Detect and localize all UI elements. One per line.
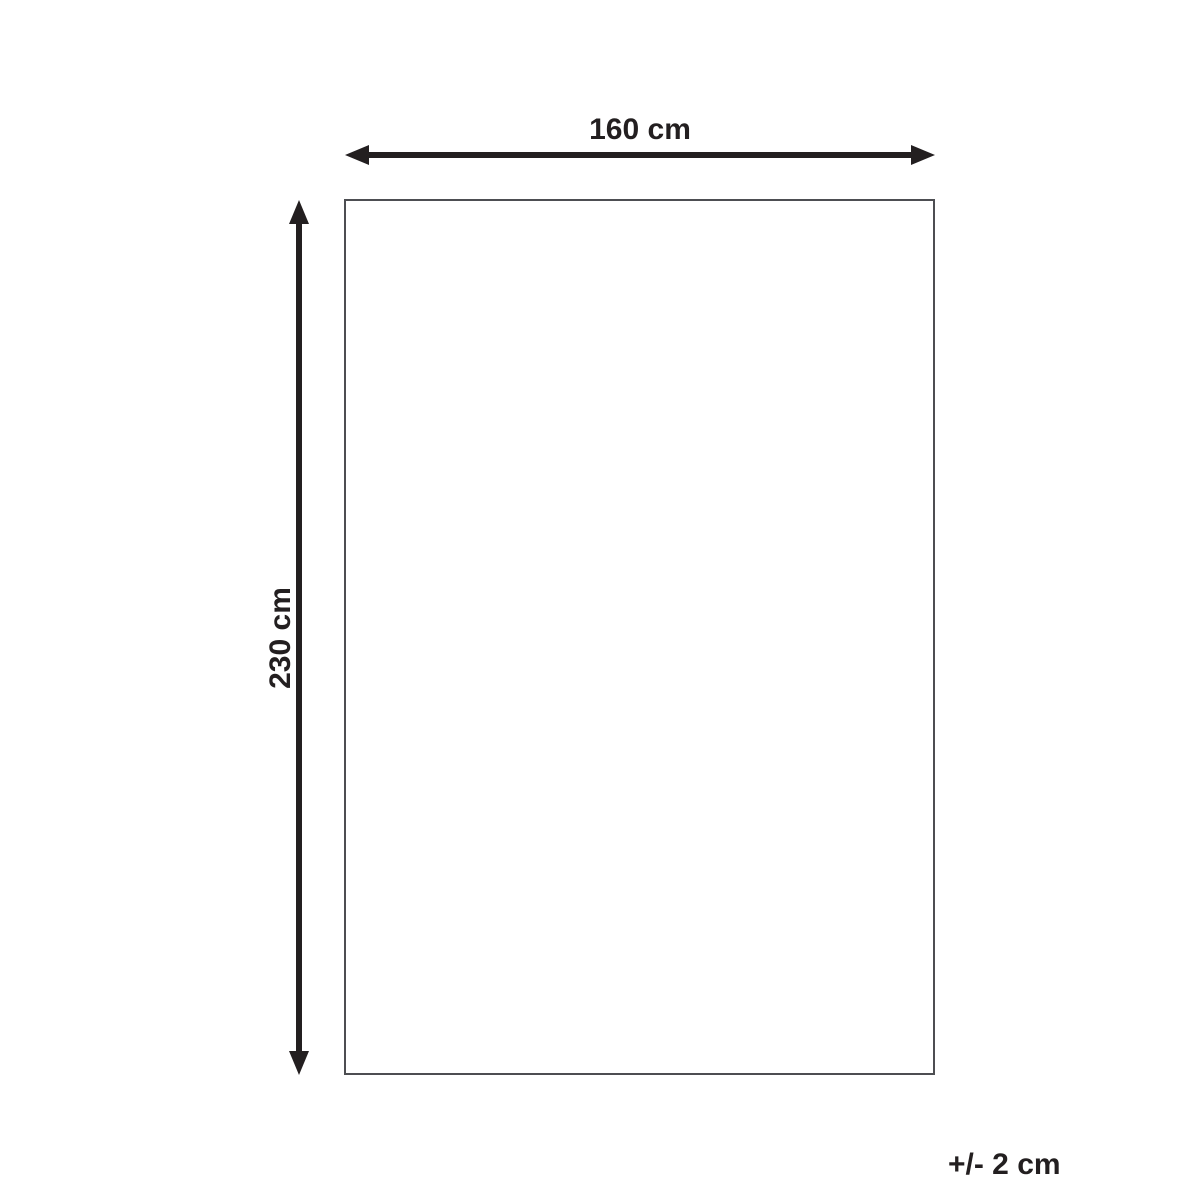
width-dimension-arrow [345,145,935,165]
dimension-diagram: 160 cm 230 cm +/- 2 cm [0,0,1200,1200]
arrowhead-right-icon [911,145,935,165]
height-dimension-label: 230 cm [264,587,298,689]
width-arrow-shaft [361,152,919,158]
tolerance-label: +/- 2 cm [948,1148,1061,1182]
product-outline-rect [344,199,935,1075]
arrowhead-down-icon [289,1051,309,1075]
width-dimension-label: 160 cm [345,113,935,147]
